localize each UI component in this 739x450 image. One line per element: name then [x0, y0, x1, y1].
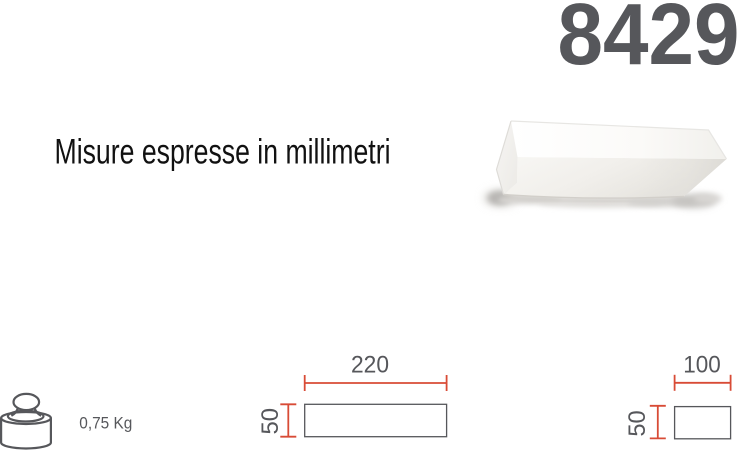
svg-text:50: 50: [257, 408, 284, 435]
svg-text:Misure espresse in millimetri: Misure espresse in millimetri: [55, 133, 391, 172]
svg-text:8429: 8429: [558, 0, 739, 83]
svg-text:100: 100: [683, 352, 721, 379]
svg-text:50: 50: [624, 410, 651, 436]
svg-text:220: 220: [351, 351, 389, 378]
svg-text:0,75 Kg: 0,75 Kg: [79, 414, 132, 432]
